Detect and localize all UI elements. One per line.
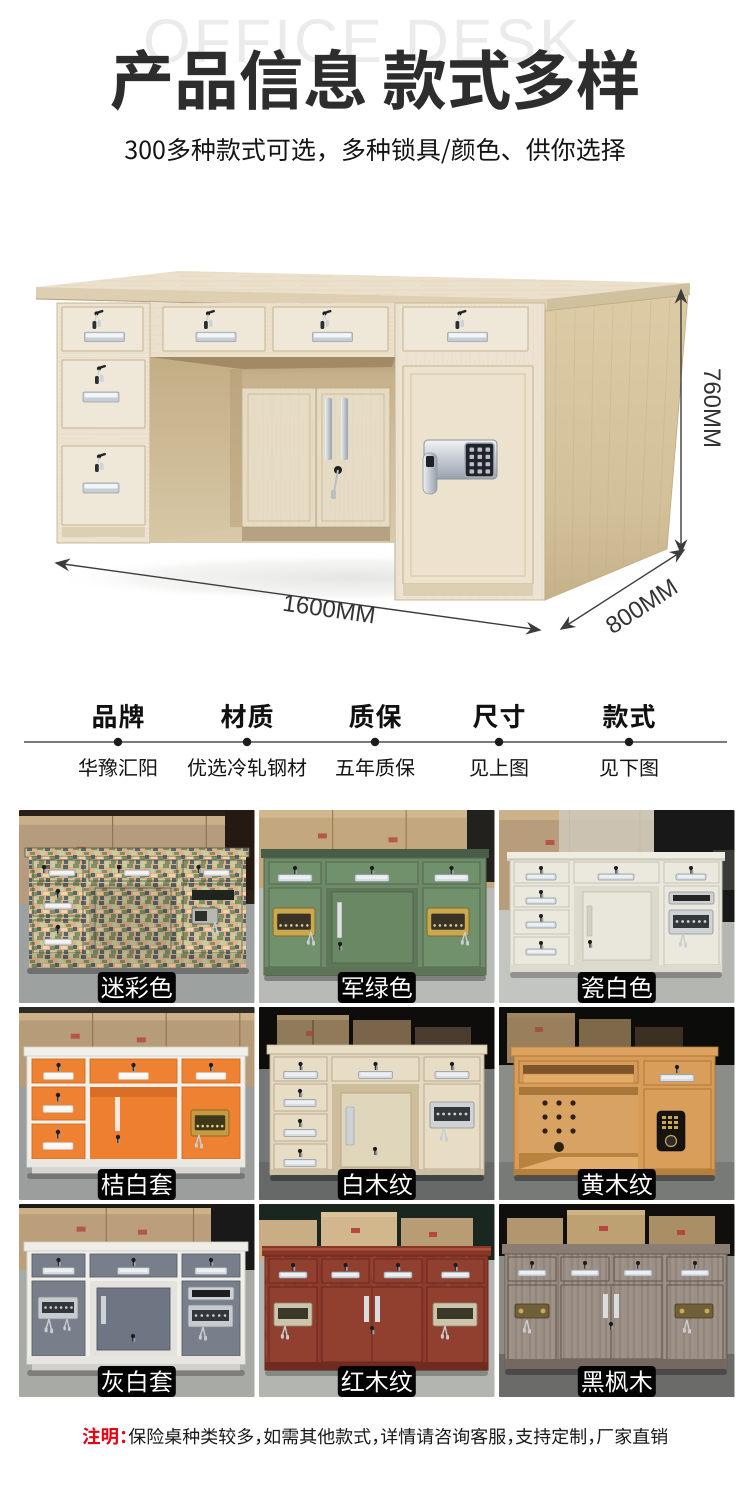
- svg-text:OFFICE DESK: OFFICE DESK: [143, 7, 583, 75]
- svg-text:760MM: 760MM: [698, 368, 725, 448]
